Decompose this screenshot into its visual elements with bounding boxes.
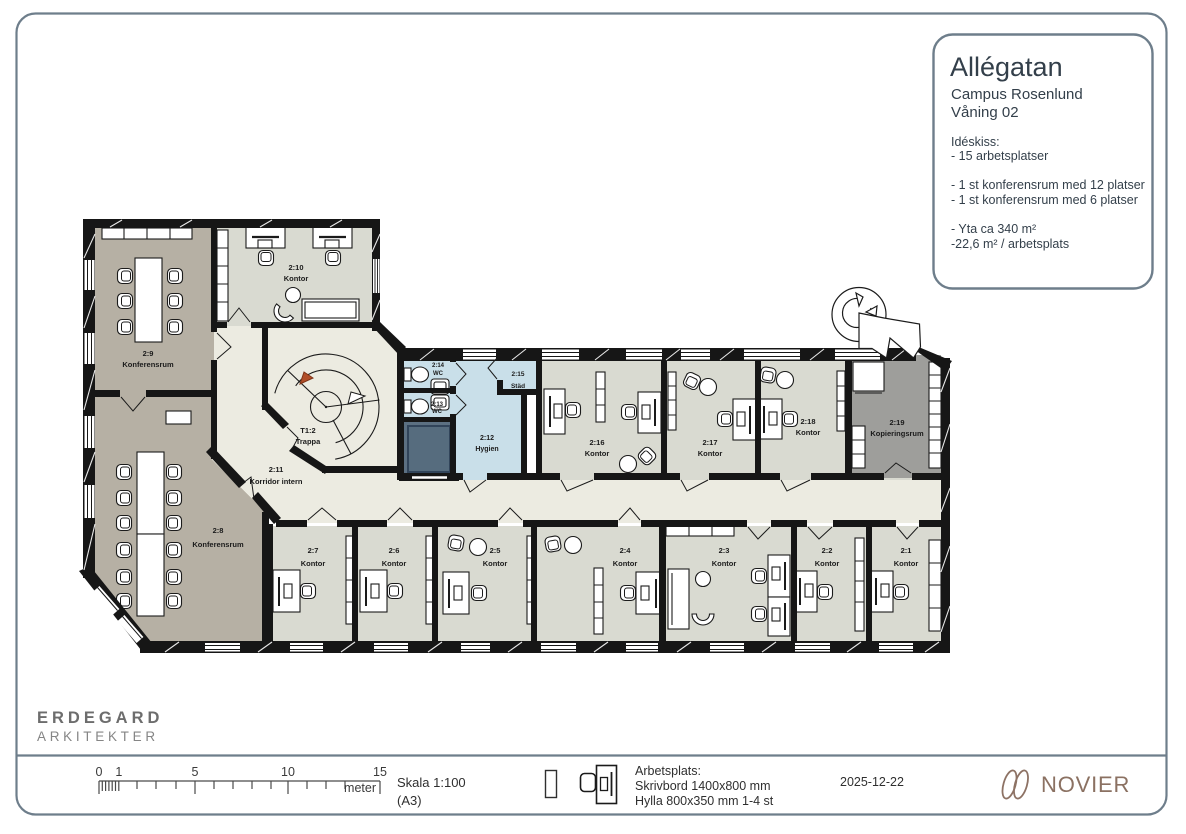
svg-text:2:12: 2:12	[480, 435, 494, 442]
svg-text:(A3): (A3)	[397, 793, 422, 808]
svg-text:Hylla 800x350 mm 1-4 st: Hylla 800x350 mm 1-4 st	[635, 794, 774, 808]
svg-text:WC: WC	[433, 371, 444, 377]
svg-text:NOVIER: NOVIER	[1041, 772, 1130, 797]
svg-text:Kontor: Kontor	[796, 428, 821, 437]
svg-text:Kontor: Kontor	[483, 559, 508, 568]
svg-text:Trappa: Trappa	[296, 437, 321, 446]
svg-text:Kontor: Kontor	[712, 559, 737, 568]
svg-text:15: 15	[373, 765, 387, 779]
svg-text:WC: WC	[432, 409, 443, 415]
svg-text:2:1: 2:1	[901, 546, 912, 555]
svg-text:1: 1	[115, 765, 122, 779]
svg-text:Kopieringsrum: Kopieringsrum	[870, 429, 924, 438]
svg-text:Idéskiss:: Idéskiss:	[951, 135, 1000, 149]
svg-text:meter: meter	[344, 781, 376, 795]
svg-text:Kontor: Kontor	[585, 449, 610, 458]
svg-text:- Yta ca 340 m²: - Yta ca 340 m²	[951, 222, 1036, 236]
svg-text:5: 5	[192, 765, 199, 779]
svg-text:Skrivbord 1400x800 mm: Skrivbord 1400x800 mm	[635, 779, 770, 793]
svg-text:Arbetsplats:: Arbetsplats:	[635, 764, 701, 778]
svg-text:Våning 02: Våning 02	[951, 104, 1019, 121]
svg-text:Kontor: Kontor	[698, 449, 723, 458]
svg-text:Skala 1:100: Skala 1:100	[397, 775, 466, 790]
svg-text:0: 0	[96, 765, 103, 779]
svg-text:Campus Rosenlund: Campus Rosenlund	[951, 86, 1083, 103]
svg-text:Kontor: Kontor	[301, 559, 326, 568]
svg-text:2:6: 2:6	[389, 546, 400, 555]
svg-text:2:8: 2:8	[213, 526, 224, 535]
svg-text:2:11: 2:11	[269, 465, 284, 474]
svg-text:Allégatan: Allégatan	[950, 52, 1063, 82]
svg-text:2:3: 2:3	[719, 546, 730, 555]
svg-text:- 1 st konferensrum med 12 pla: - 1 st konferensrum med 12 platser	[951, 178, 1145, 192]
svg-text:2:14: 2:14	[432, 363, 445, 369]
svg-text:Konferensrum: Konferensrum	[122, 360, 174, 369]
svg-text:2:15: 2:15	[511, 371, 524, 378]
svg-text:Kontor: Kontor	[284, 274, 309, 283]
svg-text:Kontor: Kontor	[382, 559, 407, 568]
svg-text:Kontor: Kontor	[815, 559, 840, 568]
svg-text:ERDEGARD: ERDEGARD	[37, 709, 163, 727]
svg-text:Kontor: Kontor	[613, 559, 638, 568]
svg-text:Kontor: Kontor	[894, 559, 919, 568]
svg-text:2:9: 2:9	[143, 349, 154, 358]
svg-text:- 15 arbetsplatser: - 15 arbetsplatser	[951, 149, 1048, 163]
svg-text:2:18: 2:18	[800, 417, 815, 426]
svg-text:ARKITEKTER: ARKITEKTER	[37, 729, 159, 744]
svg-text:- 1 st konferensrum med 6 plat: - 1 st konferensrum med 6 platser	[951, 193, 1138, 207]
svg-text:2:19: 2:19	[889, 418, 904, 427]
svg-text:2:2: 2:2	[822, 546, 833, 555]
svg-text:2:10: 2:10	[288, 263, 303, 272]
svg-text:Korridor intern: Korridor intern	[250, 477, 303, 486]
svg-text:2:13: 2:13	[431, 402, 444, 408]
svg-text:Hygien: Hygien	[475, 446, 498, 453]
svg-text:Konferensrum: Konferensrum	[192, 540, 244, 549]
svg-text:10: 10	[281, 765, 295, 779]
svg-text:Städ: Städ	[511, 383, 525, 390]
svg-text:-22,6 m² / arbetsplats: -22,6 m² / arbetsplats	[951, 237, 1069, 251]
svg-text:2:17: 2:17	[702, 438, 717, 447]
svg-text:2:16: 2:16	[589, 438, 604, 447]
svg-text:2:4: 2:4	[620, 546, 632, 555]
svg-text:2:7: 2:7	[308, 546, 319, 555]
svg-text:2:5: 2:5	[490, 546, 501, 555]
svg-text:2025-12-22: 2025-12-22	[840, 775, 904, 789]
svg-text:T1:2: T1:2	[300, 426, 315, 435]
